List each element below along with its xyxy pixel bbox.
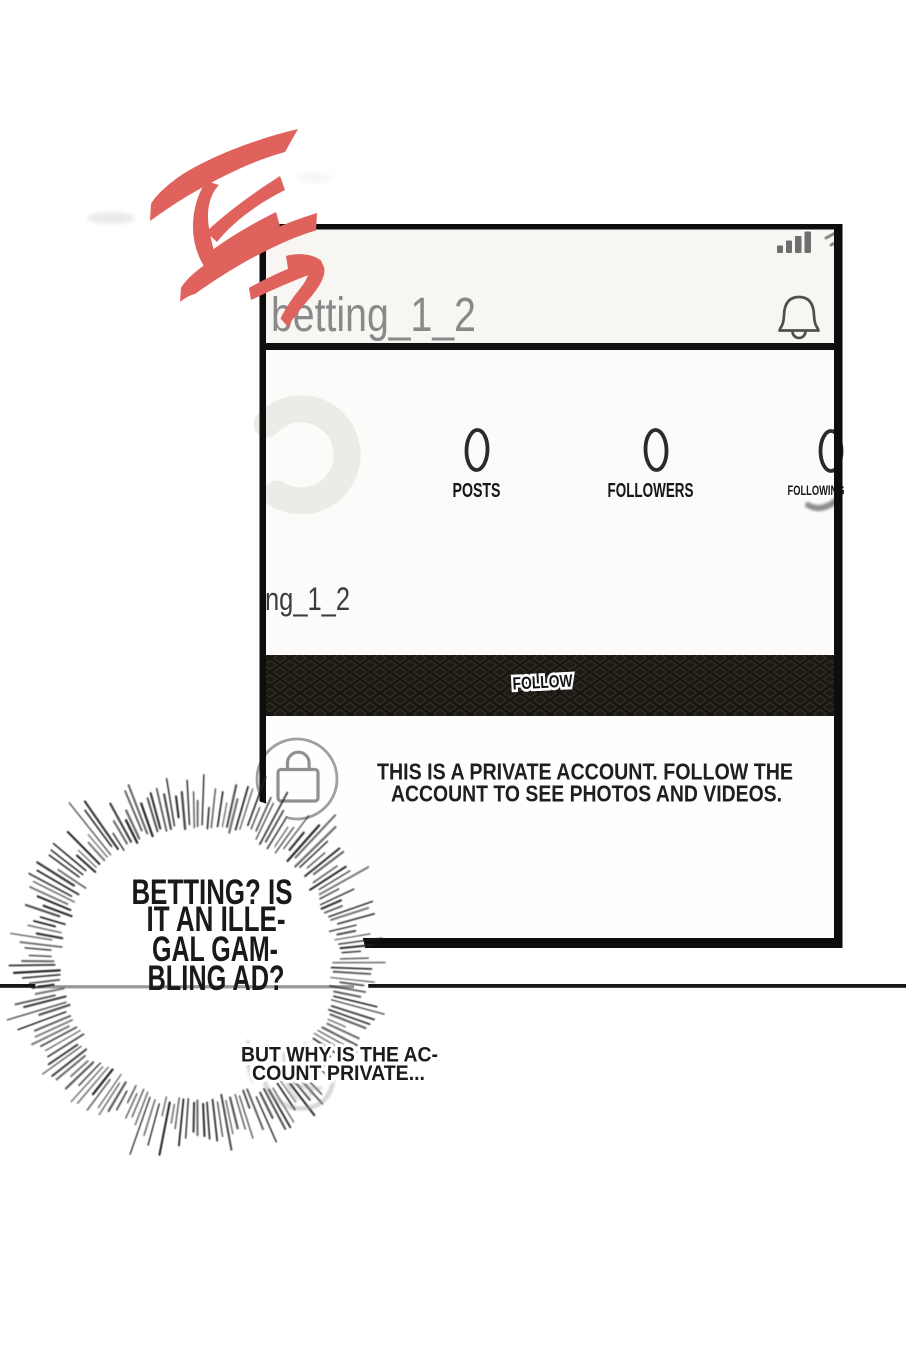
svg-text:BLING AD?: BLING AD? (148, 959, 285, 998)
svg-text:POSTS: POSTS (453, 479, 501, 502)
svg-text:COUNT PRIVATE...: COUNT PRIVATE... (252, 1061, 425, 1085)
svg-text:ACCOUNT TO SEE PHOTOS AND VIDE: ACCOUNT TO SEE PHOTOS AND VIDEOS. (391, 781, 782, 807)
svg-text:FOLLOW: FOLLOW (512, 670, 573, 693)
svg-text:FOLLOWERS: FOLLOWERS (608, 479, 694, 502)
svg-text:ng_1_2: ng_1_2 (265, 581, 350, 617)
